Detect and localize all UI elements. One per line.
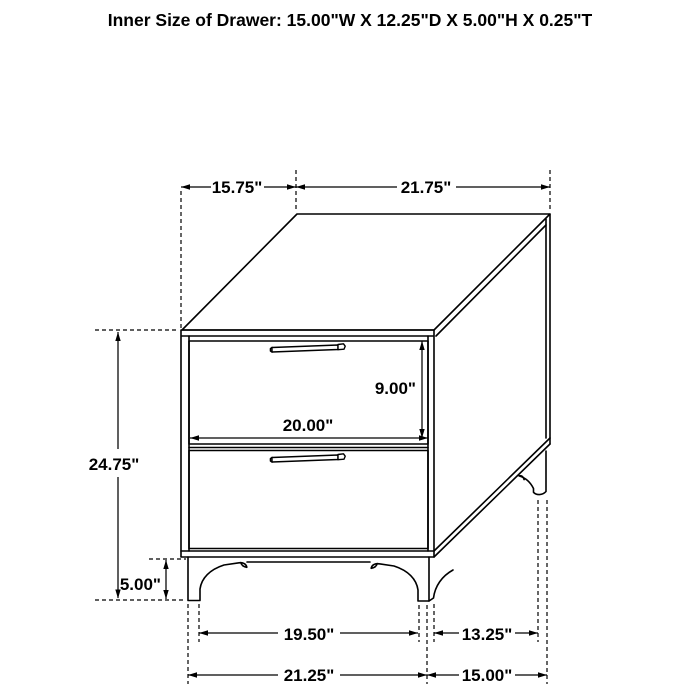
drawer-2-handle [271,454,346,462]
dim-overall-height: 24.75" [89,455,140,474]
dim-top-width: 21.75" [401,178,452,197]
top-face [182,214,550,330]
dim-front-feet-outer-span: 21.25" [284,666,335,685]
leg-front-left [188,557,247,601]
dim-side-feet-outer-span: 15.00" [462,666,513,685]
technical-drawing-page: Inner Size of Drawer: 15.00"W X 12.25"D … [0,0,700,700]
right-side-face [434,214,550,557]
dim-leg-height: 5.00" [120,575,161,594]
dim-front-feet-inner-span: 19.50" [284,625,335,644]
drawing-title: Inner Size of Drawer: 15.00"W X 12.25"D … [108,10,593,30]
leg-rear-right [519,451,546,495]
dim-drawer-front-height: 9.00" [375,379,416,398]
dimension-labels: 15.75" 21.75" 9.00" 20.00" 24.75" 5.00" … [89,178,513,685]
nightstand-dimension-diagram: Inner Size of Drawer: 15.00"W X 12.25"D … [0,0,700,700]
nightstand-drawing [181,214,550,601]
dim-side-feet-inner-span: 13.25" [462,625,513,644]
leg-front-right [371,557,453,601]
drawer-1-handle [271,344,346,352]
drawer-2-front [189,451,428,549]
dim-top-depth: 15.75" [212,178,263,197]
dim-drawer-front-width: 20.00" [283,416,334,435]
dimension-lines [118,187,550,675]
